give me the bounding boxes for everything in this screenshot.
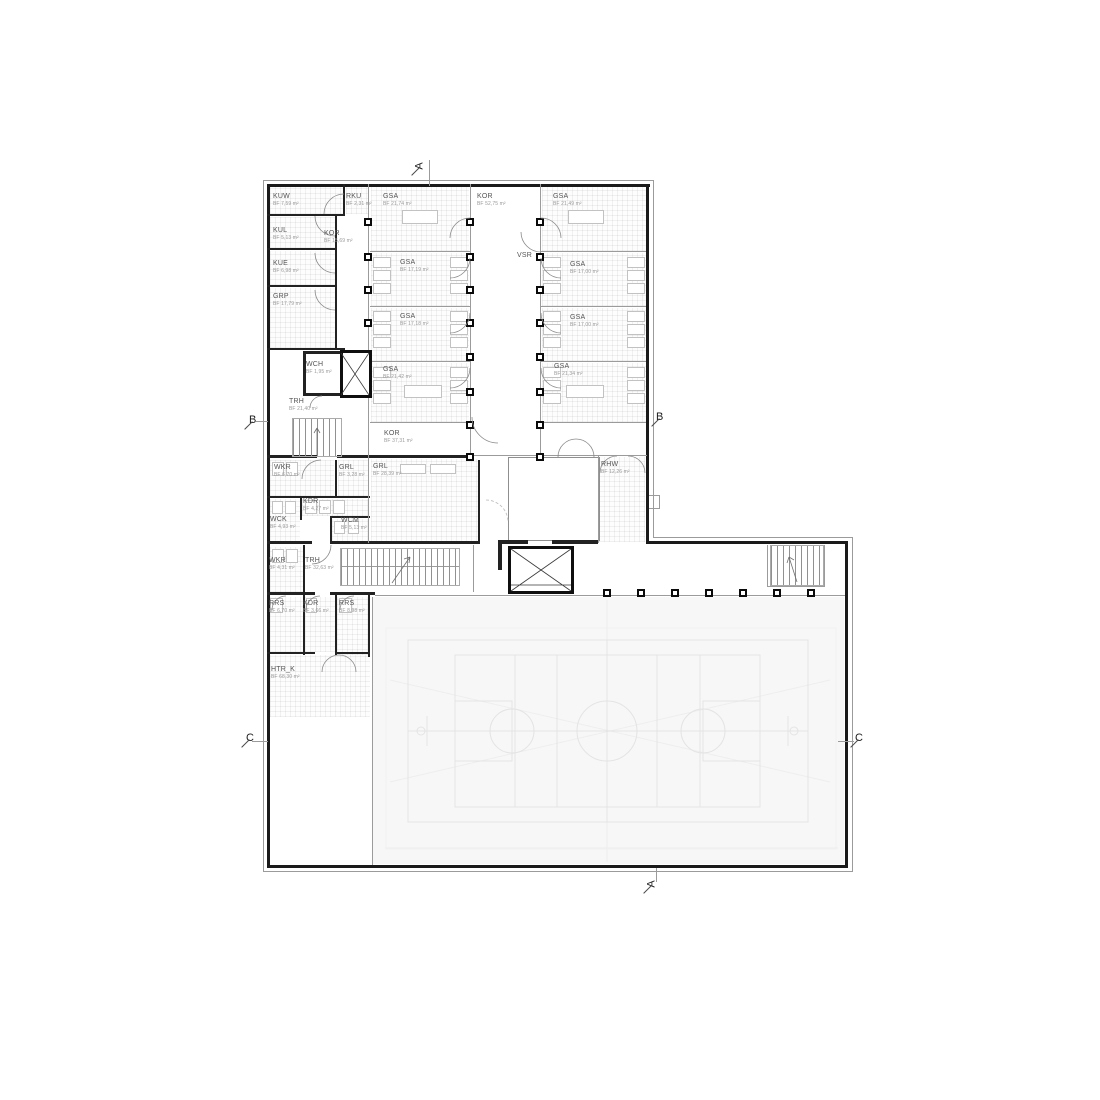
section-marker-a: A — [646, 880, 658, 887]
section-marker-a: A — [414, 162, 426, 169]
floor-plan-canvas: KUWBF 7,59 m²RKUBF 2,31 m²GSABF 21,74 m²… — [0, 0, 1100, 1100]
section-markers-layer: AABBCC — [0, 0, 1100, 1100]
